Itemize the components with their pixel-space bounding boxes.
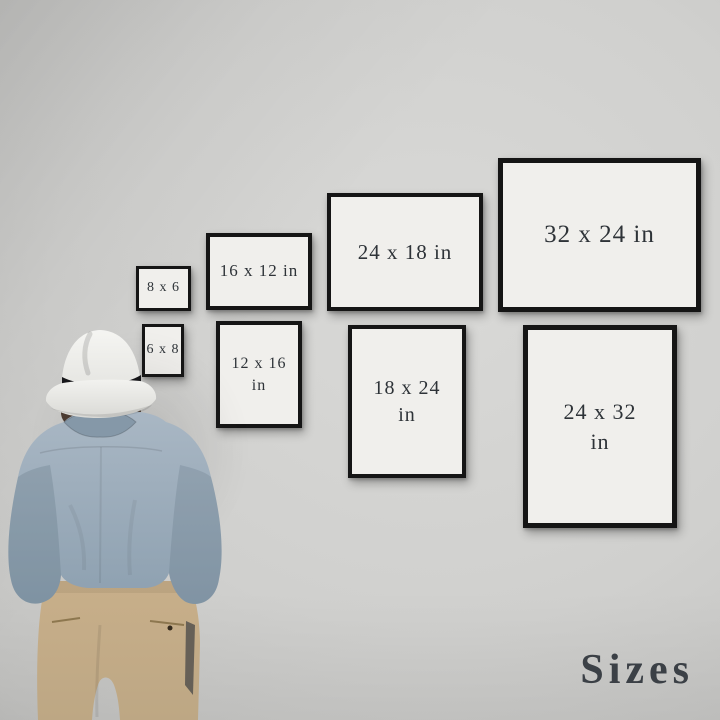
frame-size-label: 18 x 24 in	[374, 375, 441, 429]
man-silhouette	[0, 325, 230, 720]
sizes-title: Sizes	[580, 646, 694, 694]
frame-8x6: 8 x 6	[136, 266, 191, 311]
frame-18x24: 18 x 24 in	[348, 325, 466, 478]
frame-24x32: 24 x 32 in	[523, 325, 677, 528]
frame-size-label: 8 x 6	[147, 279, 180, 298]
frame-16x12: 16 x 12 in	[206, 233, 312, 310]
size-guide-scene: 8 x 6 16 x 12 in 24 x 18 in 32 x 24 in 6…	[0, 0, 720, 720]
fedora-hat	[46, 330, 156, 418]
left-sleeve	[8, 465, 61, 604]
frame-32x24: 32 x 24 in	[498, 158, 701, 312]
size-text: 32 x 24 in	[544, 218, 655, 252]
frame-size-label: 32 x 24 in	[544, 218, 655, 252]
pants	[37, 581, 200, 720]
pocket-button	[168, 626, 173, 631]
unit-text: in	[252, 375, 266, 397]
frame-size-label: 24 x 18 in	[358, 238, 453, 266]
size-text: 24 x 32	[564, 397, 637, 427]
frame-size-label: 24 x 32 in	[564, 397, 637, 456]
man-figure	[0, 325, 230, 720]
frame-24x18: 24 x 18 in	[327, 193, 483, 311]
unit-text: in	[398, 402, 416, 429]
size-text: 18 x 24	[374, 375, 441, 402]
size-text: 16 x 12 in	[220, 260, 298, 283]
size-text: 24 x 18 in	[358, 238, 453, 266]
unit-text: in	[590, 427, 609, 457]
frame-size-label: 16 x 12 in	[220, 260, 298, 283]
shirt	[8, 410, 221, 604]
size-text: 8 x 6	[147, 279, 180, 298]
